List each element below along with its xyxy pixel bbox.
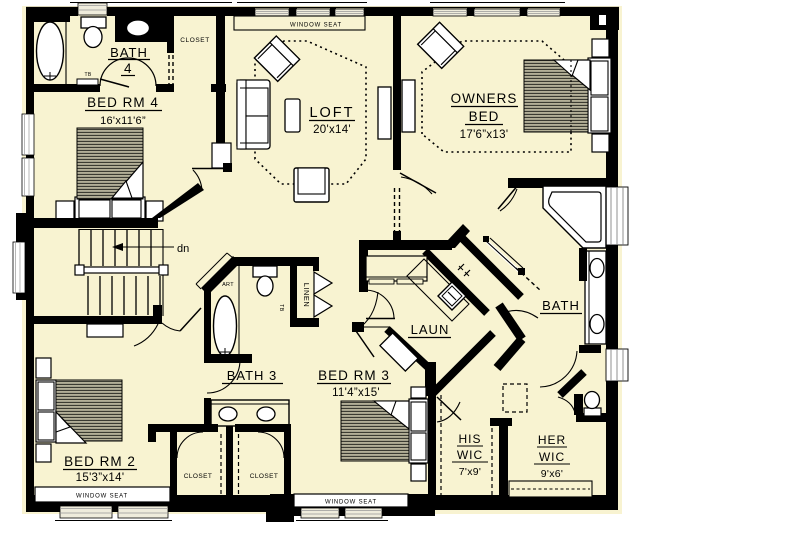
svg-text:ART: ART [222,282,234,288]
svg-text:BATH: BATH [110,45,148,60]
svg-text:BED RM 3: BED RM 3 [318,368,390,383]
svg-text:9'x6': 9'x6' [541,468,563,480]
svg-text:15'3”x14': 15'3”x14' [76,472,125,484]
svg-text:16'x11'6”: 16'x11'6” [100,115,146,127]
svg-text:7'x9': 7'x9' [459,466,481,478]
svg-text:WINDOW SEAT: WINDOW SEAT [290,23,342,29]
svg-text:CLOSET: CLOSET [250,473,278,480]
svg-text:WIC: WIC [457,448,483,462]
svg-text:BED: BED [469,109,500,124]
svg-text:BED RM 2: BED RM 2 [64,454,136,469]
svg-text:WIC: WIC [539,450,565,464]
svg-text:CLOSET: CLOSET [184,473,212,480]
svg-text:BATH 3: BATH 3 [227,368,278,383]
svg-text:OWNERS: OWNERS [451,91,518,106]
svg-text:BED RM 4: BED RM 4 [87,95,159,110]
svg-text:HER: HER [538,433,566,447]
svg-text:TB: TB [278,304,284,312]
svg-text:WINDOW SEAT: WINDOW SEAT [325,500,377,506]
svg-text:11'4”x15': 11'4”x15' [332,387,380,399]
svg-text:LINEN: LINEN [302,283,311,308]
svg-text:20'x14': 20'x14' [313,124,351,136]
svg-text:TB: TB [85,72,92,78]
svg-text:LAUN: LAUN [411,322,450,337]
svg-text:HIS: HIS [458,432,481,446]
svg-text:LOFT: LOFT [309,105,354,121]
svg-text:4: 4 [124,61,132,76]
svg-text:BATH: BATH [542,298,580,313]
svg-text:dn: dn [177,243,189,255]
svg-text:CLOSET: CLOSET [180,37,210,44]
svg-text:WINDOW SEAT: WINDOW SEAT [76,494,128,500]
svg-text:17'6”x13': 17'6”x13' [460,129,509,141]
